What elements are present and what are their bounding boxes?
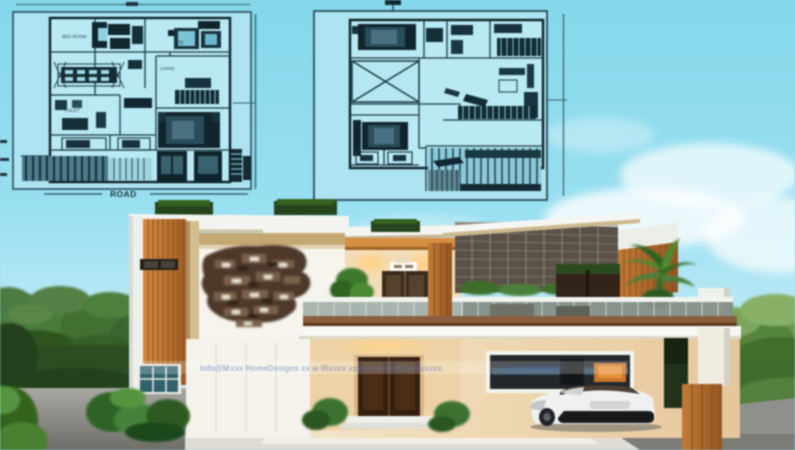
svg-text:LIVING: LIVING bbox=[160, 66, 175, 71]
svg-text:xxx HomeDesigns xx w Wxxxx xxx: xxx HomeDesigns xx w Wxxxx xxxxx bbox=[230, 364, 371, 373]
svg-text:BED ROOM: BED ROOM bbox=[62, 34, 87, 39]
svg-text:ROAD: ROAD bbox=[110, 189, 137, 199]
svg-text:+91 9123038910: +91 9123038910 bbox=[505, 364, 566, 373]
svg-text:Info@M: Info@M bbox=[200, 364, 229, 373]
svg-text:xxxxxWxxxxxxxxx: xxxxxWxxxxxxxxx bbox=[372, 364, 442, 373]
svg-text:BED: BED bbox=[174, 40, 184, 45]
svg-text:TOILET: TOILET bbox=[64, 108, 80, 113]
